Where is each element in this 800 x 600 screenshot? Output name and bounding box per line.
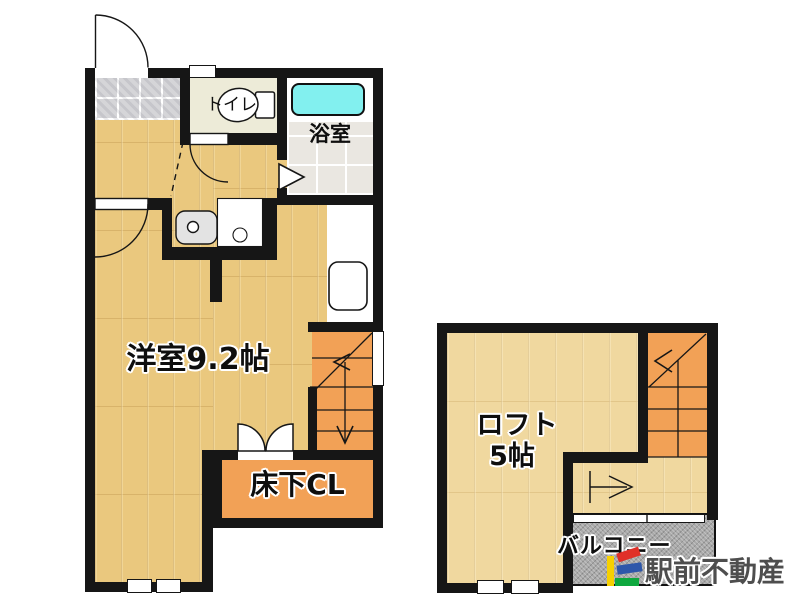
bottom-window-2 — [156, 579, 181, 593]
loft-label: ロフト — [437, 412, 597, 439]
loft-wall-top — [437, 323, 718, 333]
staircase-loft — [648, 333, 707, 457]
toilet-label: トイレ — [206, 97, 257, 114]
wall-bath-left — [277, 78, 287, 160]
company-name: 駅前不動産 — [645, 550, 785, 590]
logo-green-bar-icon — [615, 578, 639, 586]
wall-toilet-bottom-a — [180, 133, 190, 145]
wall-stairs-left — [308, 387, 317, 450]
logo-yellow-bar-icon — [607, 556, 614, 586]
staircase-main — [312, 332, 373, 450]
toilet-window — [189, 65, 216, 78]
wall-nook-stub — [210, 260, 222, 302]
entrance-door-icon — [96, 15, 149, 68]
bathtub-icon — [291, 83, 365, 116]
wall-closet-left — [202, 450, 222, 528]
loft-wall-bottom — [437, 583, 573, 593]
entrance-opening — [95, 68, 148, 78]
wall-room-closet-a — [202, 450, 238, 460]
loft-wall-interior-v — [563, 452, 573, 593]
stairs-window — [372, 331, 384, 386]
wall-toilet-left — [180, 68, 190, 140]
wall-room-closet-b — [293, 450, 383, 460]
main-room-label: 洋室9.2帖 — [95, 345, 301, 375]
floor-plan: 洋室9.2帖 トイレ 浴室 床下CL ロフト 5帖 バルコニー 駅前不動産 — [0, 0, 800, 600]
wall-closet-bottom — [202, 518, 383, 528]
loft-wall-right — [707, 323, 718, 520]
loft-bottom-window-2 — [511, 580, 539, 594]
wall-left — [85, 68, 95, 592]
bathroom-label: 浴室 — [287, 124, 373, 145]
wall-nook-right — [263, 198, 277, 260]
loft-size-label: 5帖 — [437, 443, 587, 470]
kitchen-area — [327, 205, 373, 322]
wall-lower-right — [202, 528, 213, 592]
wall-bath-bottom — [277, 195, 383, 205]
underfloor-closet-label: 床下CL — [222, 471, 373, 499]
loft-wall-stairs-left — [638, 333, 648, 457]
main-room-floor — [95, 78, 213, 582]
entrance-tile-floor — [95, 78, 182, 120]
balcony-window-sill — [573, 514, 705, 523]
bottom-window-1 — [127, 579, 152, 593]
wall-nook-bottom — [162, 247, 277, 260]
loft-bottom-window-1 — [477, 580, 504, 594]
closet-door-sill — [238, 450, 293, 460]
